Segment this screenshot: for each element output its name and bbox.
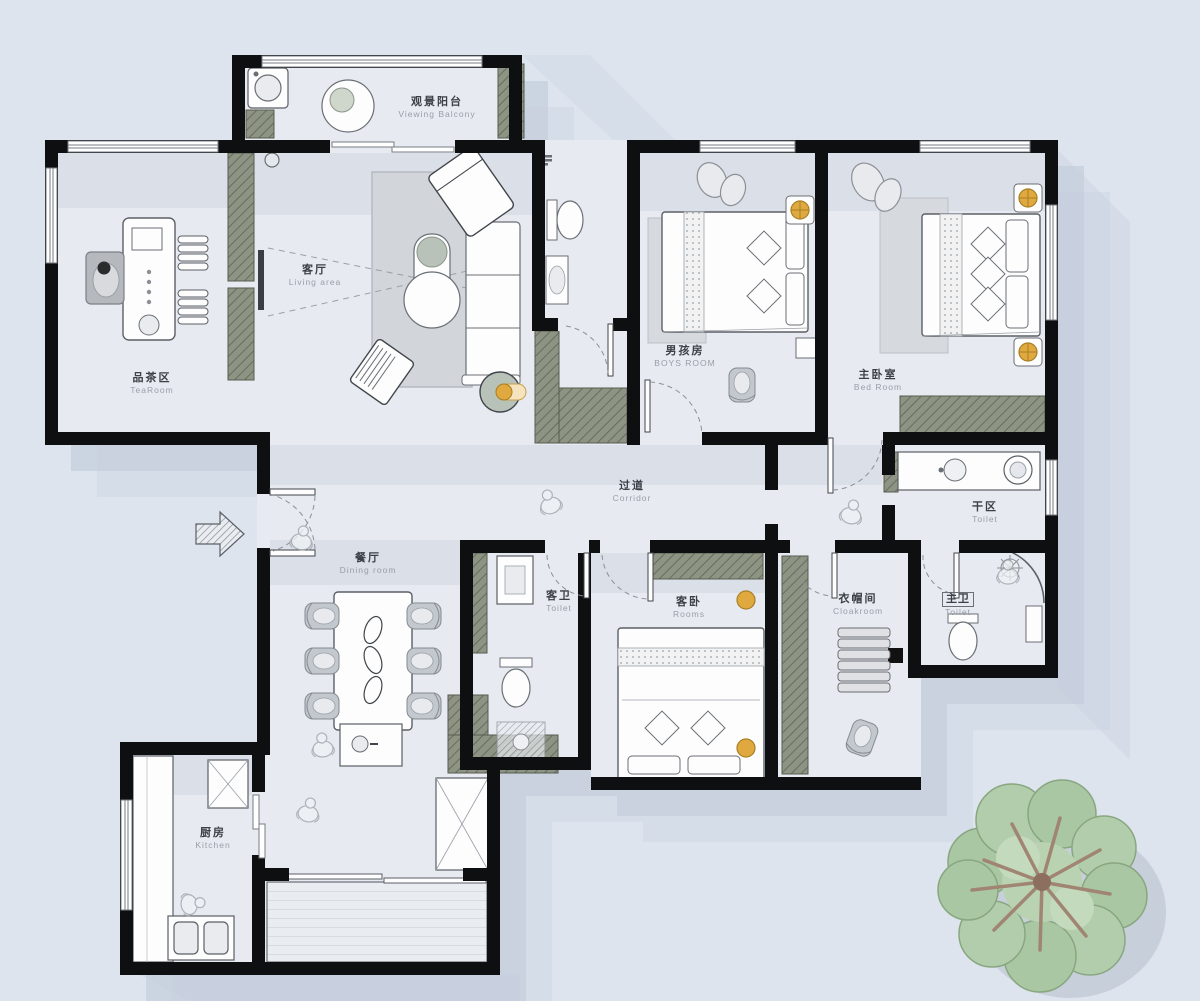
sofa: [462, 222, 520, 385]
tea-tray: [132, 228, 162, 250]
tea-chair-person: [86, 252, 124, 304]
floor-drain: [265, 153, 279, 167]
tall-cabinet: [436, 778, 488, 870]
floor-plan-drawing: [0, 0, 1200, 1001]
ceiling-light: [737, 739, 755, 757]
tea-set: [139, 315, 159, 335]
desk-chair: [729, 368, 755, 402]
ceiling-light: [1014, 338, 1042, 366]
boys-bed: [662, 212, 808, 332]
floor-plan-canvas: 观景阳台Viewing Balcony 客厅Living area 品茶区Tea…: [0, 0, 1200, 1001]
fridge: [208, 760, 248, 808]
double-sink: [168, 916, 234, 960]
ceiling-light: [1014, 184, 1042, 212]
ceiling-light: [786, 196, 814, 224]
round-planter: [322, 80, 374, 132]
kitchen-counter: [133, 756, 173, 962]
shower: [497, 722, 545, 762]
bottom-balcony: [267, 874, 487, 962]
guest-bed: [618, 628, 764, 780]
bedside-table: [796, 338, 816, 358]
washbasin: [546, 256, 568, 304]
washbasin: [497, 556, 533, 604]
ceiling-light: [737, 591, 755, 609]
master-bed: [922, 214, 1040, 336]
tv-panel: [258, 250, 264, 310]
sink: [944, 459, 966, 481]
island-sink: [340, 724, 402, 766]
tree-trunk: [1033, 873, 1051, 891]
toilet: [948, 614, 978, 660]
washing-machine: [248, 68, 288, 108]
dry-area-fixtures: [898, 452, 1040, 490]
bath-sink: [1026, 606, 1042, 642]
toilet: [500, 658, 532, 707]
toilet: [547, 200, 583, 240]
